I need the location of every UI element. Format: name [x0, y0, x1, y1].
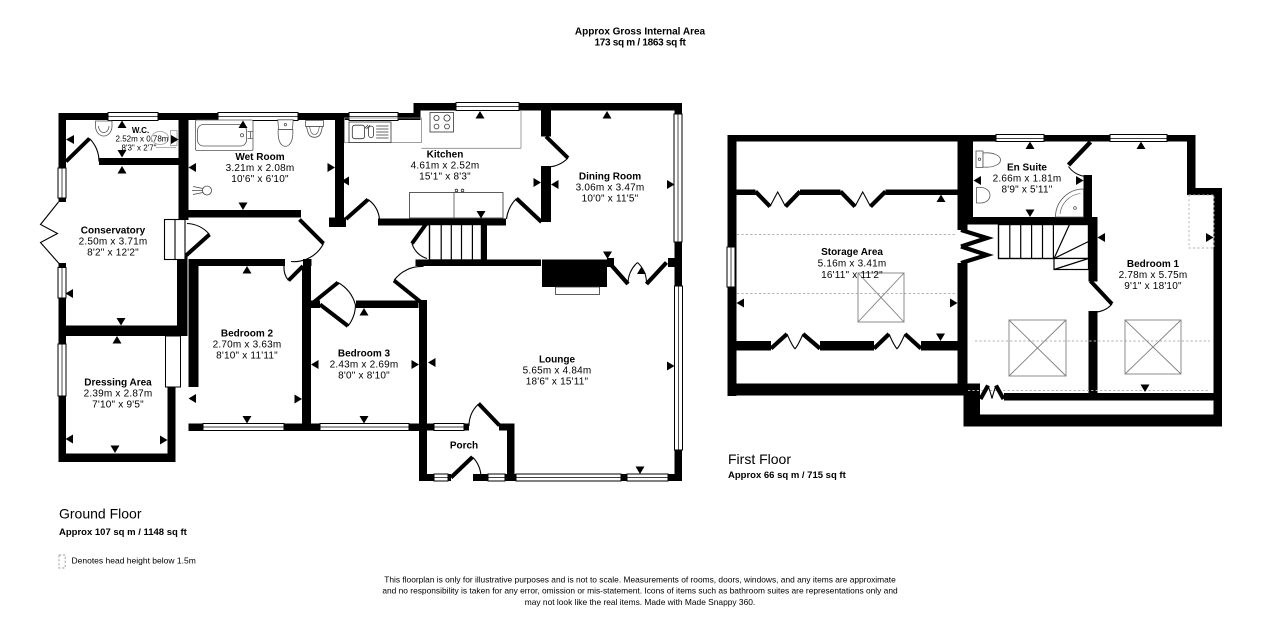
svg-text:2.52m x 0.78m: 2.52m x 0.78m: [116, 135, 169, 144]
svg-text:8'3" x 2'7": 8'3" x 2'7": [122, 143, 157, 152]
svg-text:5.65m x 4.84m: 5.65m x 4.84m: [523, 365, 592, 376]
svg-text:8'2" x 12'2": 8'2" x 12'2": [87, 248, 139, 259]
svg-text:16'11" x 11'2": 16'11" x 11'2": [821, 270, 883, 281]
svg-text:Approx 107 sq m / 1148 sq ft: Approx 107 sq m / 1148 sq ft: [59, 527, 188, 538]
svg-text:8'9" x 5'11": 8'9" x 5'11": [1002, 185, 1053, 196]
svg-text:First Floor: First Floor: [728, 451, 791, 467]
svg-text:2.39m x 2.87m: 2.39m x 2.87m: [84, 389, 153, 400]
svg-text:may not look like the real ite: may not look like the real items. Made w…: [525, 597, 755, 607]
svg-text:En Suite: En Suite: [1007, 162, 1047, 173]
svg-text:2.66m x 1.81m: 2.66m x 1.81m: [993, 174, 1062, 185]
svg-text:Denotes head height below 1.5m: Denotes head height below 1.5m: [72, 556, 196, 566]
svg-text:Conservatory: Conservatory: [81, 226, 146, 237]
svg-text:18'6" x 15'11": 18'6" x 15'11": [526, 376, 589, 387]
svg-text:7'10" x 9'5": 7'10" x 9'5": [92, 400, 144, 411]
svg-text:8'10" x 11'11": 8'10" x 11'11": [216, 351, 278, 362]
svg-text:173 sq m / 1863 sq ft: 173 sq m / 1863 sq ft: [595, 37, 687, 48]
svg-text:Bedroom 3: Bedroom 3: [338, 349, 391, 360]
svg-text:Dining Room: Dining Room: [579, 172, 641, 183]
svg-text:15'1" x 8'3": 15'1" x 8'3": [419, 172, 471, 183]
svg-text:9'1" x 18'10": 9'1" x 18'10": [1124, 281, 1182, 292]
svg-text:Porch: Porch: [450, 441, 478, 452]
svg-text:Ground Floor: Ground Floor: [59, 506, 142, 522]
svg-text:Storage Area: Storage Area: [821, 247, 883, 258]
svg-text:Dressing Area: Dressing Area: [84, 378, 152, 389]
svg-text:Approx Gross Internal Area: Approx Gross Internal Area: [575, 27, 706, 38]
svg-text:5.16m x 3.41m: 5.16m x 3.41m: [818, 259, 887, 270]
svg-text:2.50m x 3.71m: 2.50m x 3.71m: [79, 237, 148, 248]
svg-text:2.70m x 3.63m: 2.70m x 3.63m: [213, 340, 282, 351]
svg-text:3.21m x 2.08m: 3.21m x 2.08m: [226, 163, 295, 174]
svg-text:Kitchen: Kitchen: [427, 150, 464, 161]
svg-text:10'6" x 6'10": 10'6" x 6'10": [231, 174, 289, 185]
svg-text:W.C.: W.C.: [132, 126, 149, 135]
svg-text:Approx 66 sq m / 715 sq ft: Approx 66 sq m / 715 sq ft: [728, 470, 847, 481]
svg-text:10'0" x 11'5": 10'0" x 11'5": [582, 194, 639, 205]
svg-text:2.43m x 2.69m: 2.43m x 2.69m: [330, 360, 399, 371]
svg-text:Bedroom 2: Bedroom 2: [221, 329, 274, 340]
svg-text:and no responsibility is taken: and no responsibility is taken for any e…: [382, 586, 898, 596]
svg-text:2.78m x 5.75m: 2.78m x 5.75m: [1119, 270, 1188, 281]
svg-text:3.06m x 3.47m: 3.06m x 3.47m: [576, 183, 645, 194]
svg-text:4.61m x 2.52m: 4.61m x 2.52m: [411, 161, 480, 172]
svg-text:8'0" x 8'10": 8'0" x 8'10": [338, 371, 390, 382]
svg-text:Wet Room: Wet Room: [235, 152, 284, 163]
svg-text:This floorplan is only for ill: This floorplan is only for illustrative …: [384, 575, 896, 585]
svg-text:Lounge: Lounge: [539, 354, 576, 365]
svg-text:Bedroom 1: Bedroom 1: [1127, 259, 1180, 270]
